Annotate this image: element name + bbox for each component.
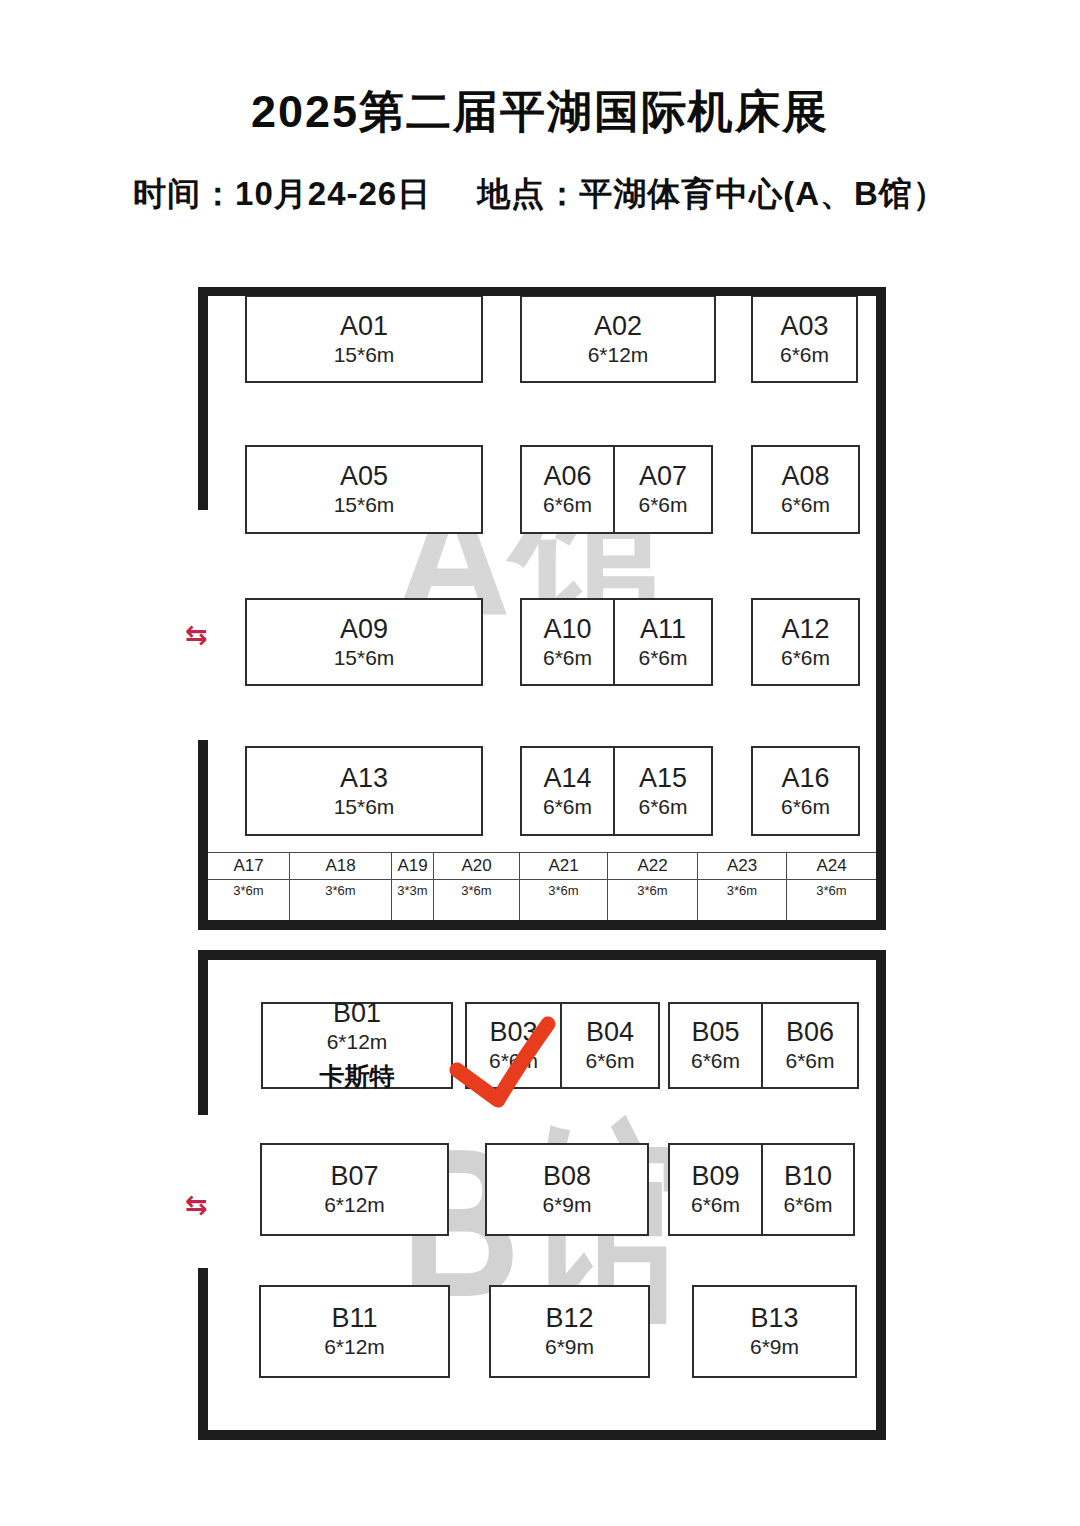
booth-id: A15: [639, 763, 687, 794]
booth-size: 6*6m: [543, 492, 592, 517]
booth-b04: B046*6m: [560, 1002, 660, 1089]
booth-size: 3*6m: [461, 880, 491, 898]
booth-id: A21: [520, 853, 607, 880]
booth-a24: A243*6m: [787, 853, 876, 920]
booth-a18: A183*6m: [290, 853, 392, 920]
booth-a20: A203*6m: [434, 853, 520, 920]
booth-id: B05: [691, 1017, 739, 1048]
booth-size: 6*12m: [327, 1029, 388, 1054]
hall-a-wall-strip-booths: A173*6mA183*6mA193*3mA203*6mA213*6mA223*…: [208, 852, 876, 920]
booth-size: 6*12m: [588, 342, 649, 367]
hall-a-wall-left-lower: [198, 740, 208, 930]
booth-id: A06: [543, 461, 591, 492]
booth-size: 6*6m: [585, 1048, 634, 1073]
booth-id: A12: [781, 614, 829, 645]
booth-size: 6*9m: [542, 1192, 591, 1217]
booth-id: B09: [691, 1161, 739, 1192]
booth-id: A16: [781, 763, 829, 794]
booth-size: 6*12m: [324, 1192, 385, 1217]
booth-b07: B076*12m: [260, 1143, 449, 1236]
booth-id: A09: [340, 614, 388, 645]
hall-a-wall-right: [876, 287, 886, 930]
booth-a14: A146*6m: [520, 746, 615, 836]
hall-a-wall-left-upper: [198, 287, 208, 510]
booth-id: B06: [786, 1017, 834, 1048]
booth-id: A07: [639, 461, 687, 492]
booth-a16: A166*6m: [751, 746, 860, 836]
booth-id: A08: [781, 461, 829, 492]
booth-id: A03: [780, 311, 828, 342]
hall-a-entrance-arrows-icon: ⇆: [185, 622, 208, 649]
booth-id: A13: [340, 763, 388, 794]
booth-size: 6*9m: [545, 1334, 594, 1359]
booth-id: A17: [208, 853, 289, 880]
booth-size: 6*6m: [543, 794, 592, 819]
booth-size: 6*6m: [543, 645, 592, 670]
booth-size: 15*6m: [334, 794, 395, 819]
booth-b06: B066*6m: [761, 1002, 859, 1089]
booth-size: 6*6m: [781, 645, 830, 670]
hall-a-wall-top: [198, 287, 886, 296]
booth-size: 6*6m: [780, 342, 829, 367]
event-time: 时间：10月24-26日: [133, 172, 431, 217]
booth-id: A22: [608, 853, 697, 880]
booth-id: A19: [392, 853, 433, 880]
checkmark-icon: [440, 1008, 570, 1123]
booth-size: 15*6m: [334, 492, 395, 517]
hall-a-floorplan: A馆 ⇆ A0115*6mA026*12mA036*6mA0515*6mA066…: [198, 287, 886, 930]
booth-id: A23: [698, 853, 786, 880]
booth-id: B12: [545, 1303, 593, 1334]
booth-a21: A213*6m: [520, 853, 608, 920]
booth-a12: A126*6m: [751, 598, 860, 686]
hall-b-wall-top: [198, 950, 886, 960]
booth-size: 15*6m: [334, 342, 395, 367]
booth-id: B13: [750, 1303, 798, 1334]
booth-a07: A076*6m: [613, 445, 713, 534]
booth-id: A02: [594, 311, 642, 342]
booth-size: 6*6m: [638, 492, 687, 517]
page-title: 2025第二届平湖国际机床展: [0, 82, 1080, 142]
hall-b-wall-bottom: [198, 1430, 886, 1440]
event-info: 时间：10月24-26日 地点：平湖体育中心(A、B馆）: [0, 172, 1080, 217]
booth-a15: A156*6m: [613, 746, 713, 836]
booth-id: A14: [543, 763, 591, 794]
hall-b-wall-right: [876, 950, 886, 1440]
booth-a13: A1315*6m: [245, 746, 483, 836]
event-venue: 地点：平湖体育中心(A、B馆）: [477, 172, 947, 217]
booth-size: 3*6m: [727, 880, 757, 898]
booth-a03: A036*6m: [751, 295, 858, 383]
booth-size: 6*6m: [781, 492, 830, 517]
booth-id: A20: [434, 853, 519, 880]
booth-company: 卡斯特: [320, 1060, 395, 1093]
booth-size: 3*6m: [325, 880, 355, 898]
booth-size: 3*6m: [637, 880, 667, 898]
booth-size: 6*6m: [638, 794, 687, 819]
hall-b-wall-left-lower: [198, 1268, 208, 1440]
booth-size: 3*6m: [816, 880, 846, 898]
hall-b-wall-left-upper: [198, 950, 208, 1115]
booth-a17: A173*6m: [208, 853, 290, 920]
booth-id: B01: [333, 998, 381, 1029]
booth-size: 15*6m: [334, 645, 395, 670]
booth-a02: A026*12m: [520, 295, 716, 383]
booth-a22: A223*6m: [608, 853, 698, 920]
booth-size: 6*9m: [750, 1334, 799, 1359]
booth-a06: A066*6m: [520, 445, 615, 534]
booth-b08: B086*9m: [485, 1143, 649, 1236]
booth-a11: A116*6m: [613, 598, 713, 686]
booth-size: 6*6m: [638, 645, 687, 670]
booth-b13: B136*9m: [692, 1285, 857, 1378]
booth-a19: A193*3m: [392, 853, 434, 920]
booth-size: 6*6m: [691, 1192, 740, 1217]
booth-a05: A0515*6m: [245, 445, 483, 534]
booth-a01: A0115*6m: [245, 295, 483, 383]
booth-a23: A233*6m: [698, 853, 787, 920]
booth-id: A24: [787, 853, 876, 880]
booth-size: 3*3m: [397, 880, 427, 898]
hall-b-entrance-arrows-icon: ⇆: [185, 1192, 208, 1219]
booth-b10: B106*6m: [761, 1143, 855, 1236]
booth-id: B10: [784, 1161, 832, 1192]
booth-size: 6*6m: [783, 1192, 832, 1217]
booth-size: 6*12m: [324, 1334, 385, 1359]
booth-id: A05: [340, 461, 388, 492]
booth-b11: B116*12m: [259, 1285, 450, 1378]
hall-a-wall-bottom: [198, 920, 886, 930]
booth-b12: B126*9m: [489, 1285, 650, 1378]
booth-b01: B016*12m卡斯特: [261, 1002, 453, 1089]
booth-id: B08: [543, 1161, 591, 1192]
booth-size: 3*6m: [548, 880, 578, 898]
booth-id: A11: [640, 614, 686, 645]
booth-size: 6*6m: [691, 1048, 740, 1073]
booth-a10: A106*6m: [520, 598, 615, 686]
booth-id: B04: [586, 1017, 634, 1048]
booth-b09: B096*6m: [668, 1143, 763, 1236]
booth-size: 3*6m: [233, 880, 263, 898]
booth-id: A10: [543, 614, 591, 645]
booth-b05: B056*6m: [668, 1002, 763, 1089]
booth-size: 6*6m: [781, 794, 830, 819]
booth-a09: A0915*6m: [245, 598, 483, 686]
booth-id: B11: [331, 1303, 377, 1334]
booth-size: 6*6m: [785, 1048, 834, 1073]
booth-id: A01: [340, 311, 388, 342]
booth-a08: A086*6m: [751, 445, 860, 534]
booth-id: B07: [330, 1161, 378, 1192]
booth-id: A18: [290, 853, 391, 880]
